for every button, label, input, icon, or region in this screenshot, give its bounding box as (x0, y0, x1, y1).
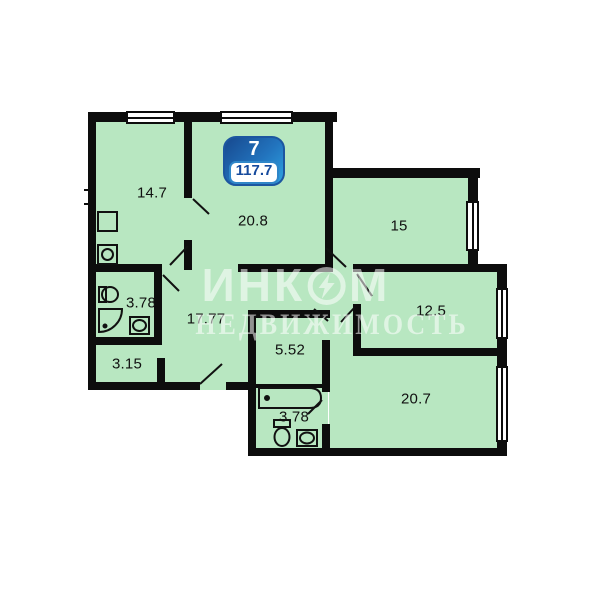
wall (248, 310, 256, 456)
room-label-hallway: 17.77 (187, 311, 226, 328)
wall (184, 240, 192, 270)
wall (256, 384, 322, 388)
wall (88, 112, 96, 390)
wall (353, 304, 361, 356)
wall (238, 264, 333, 272)
window (496, 366, 508, 442)
wall (96, 337, 162, 345)
window (220, 111, 293, 124)
room-label-storage: 3.15 (112, 356, 142, 373)
wall (252, 448, 507, 456)
entrance-door-gap (196, 380, 230, 390)
room-label-bedroom-bottom-right: 20.7 (401, 391, 431, 408)
wall (353, 348, 507, 356)
wall (184, 118, 192, 198)
wall (88, 382, 200, 390)
room-area-inner-hall (252, 314, 328, 452)
wall (248, 310, 330, 318)
wall (325, 168, 480, 178)
total-area: 117.7 (229, 161, 279, 184)
floor-plan: 14.7 20.8 15 12.5 20.7 17.77 3.78 3.15 5… (0, 0, 600, 600)
room-label-inner-hall: 5.52 (275, 342, 305, 359)
room-label-bedroom-right: 12.5 (416, 303, 446, 320)
wall (325, 112, 333, 172)
wall (353, 264, 507, 272)
rooms-count: 7 (225, 138, 283, 161)
window (496, 288, 508, 339)
wall (157, 358, 165, 390)
wall (325, 168, 333, 272)
unit-badge: 7 117.7 (223, 136, 285, 186)
wall (322, 424, 330, 456)
room-label-bedroom-top-right: 15 (390, 218, 407, 235)
room-label-kitchen: 14.7 (137, 185, 167, 202)
window (466, 201, 479, 251)
wall (322, 340, 330, 392)
wall (96, 264, 162, 272)
room-label-bathroom-bottom: 3.78 (279, 409, 309, 426)
room-label-bathroom-left: 3.78 (126, 295, 156, 312)
window (126, 111, 175, 124)
room-label-living-room: 20.8 (238, 213, 268, 230)
